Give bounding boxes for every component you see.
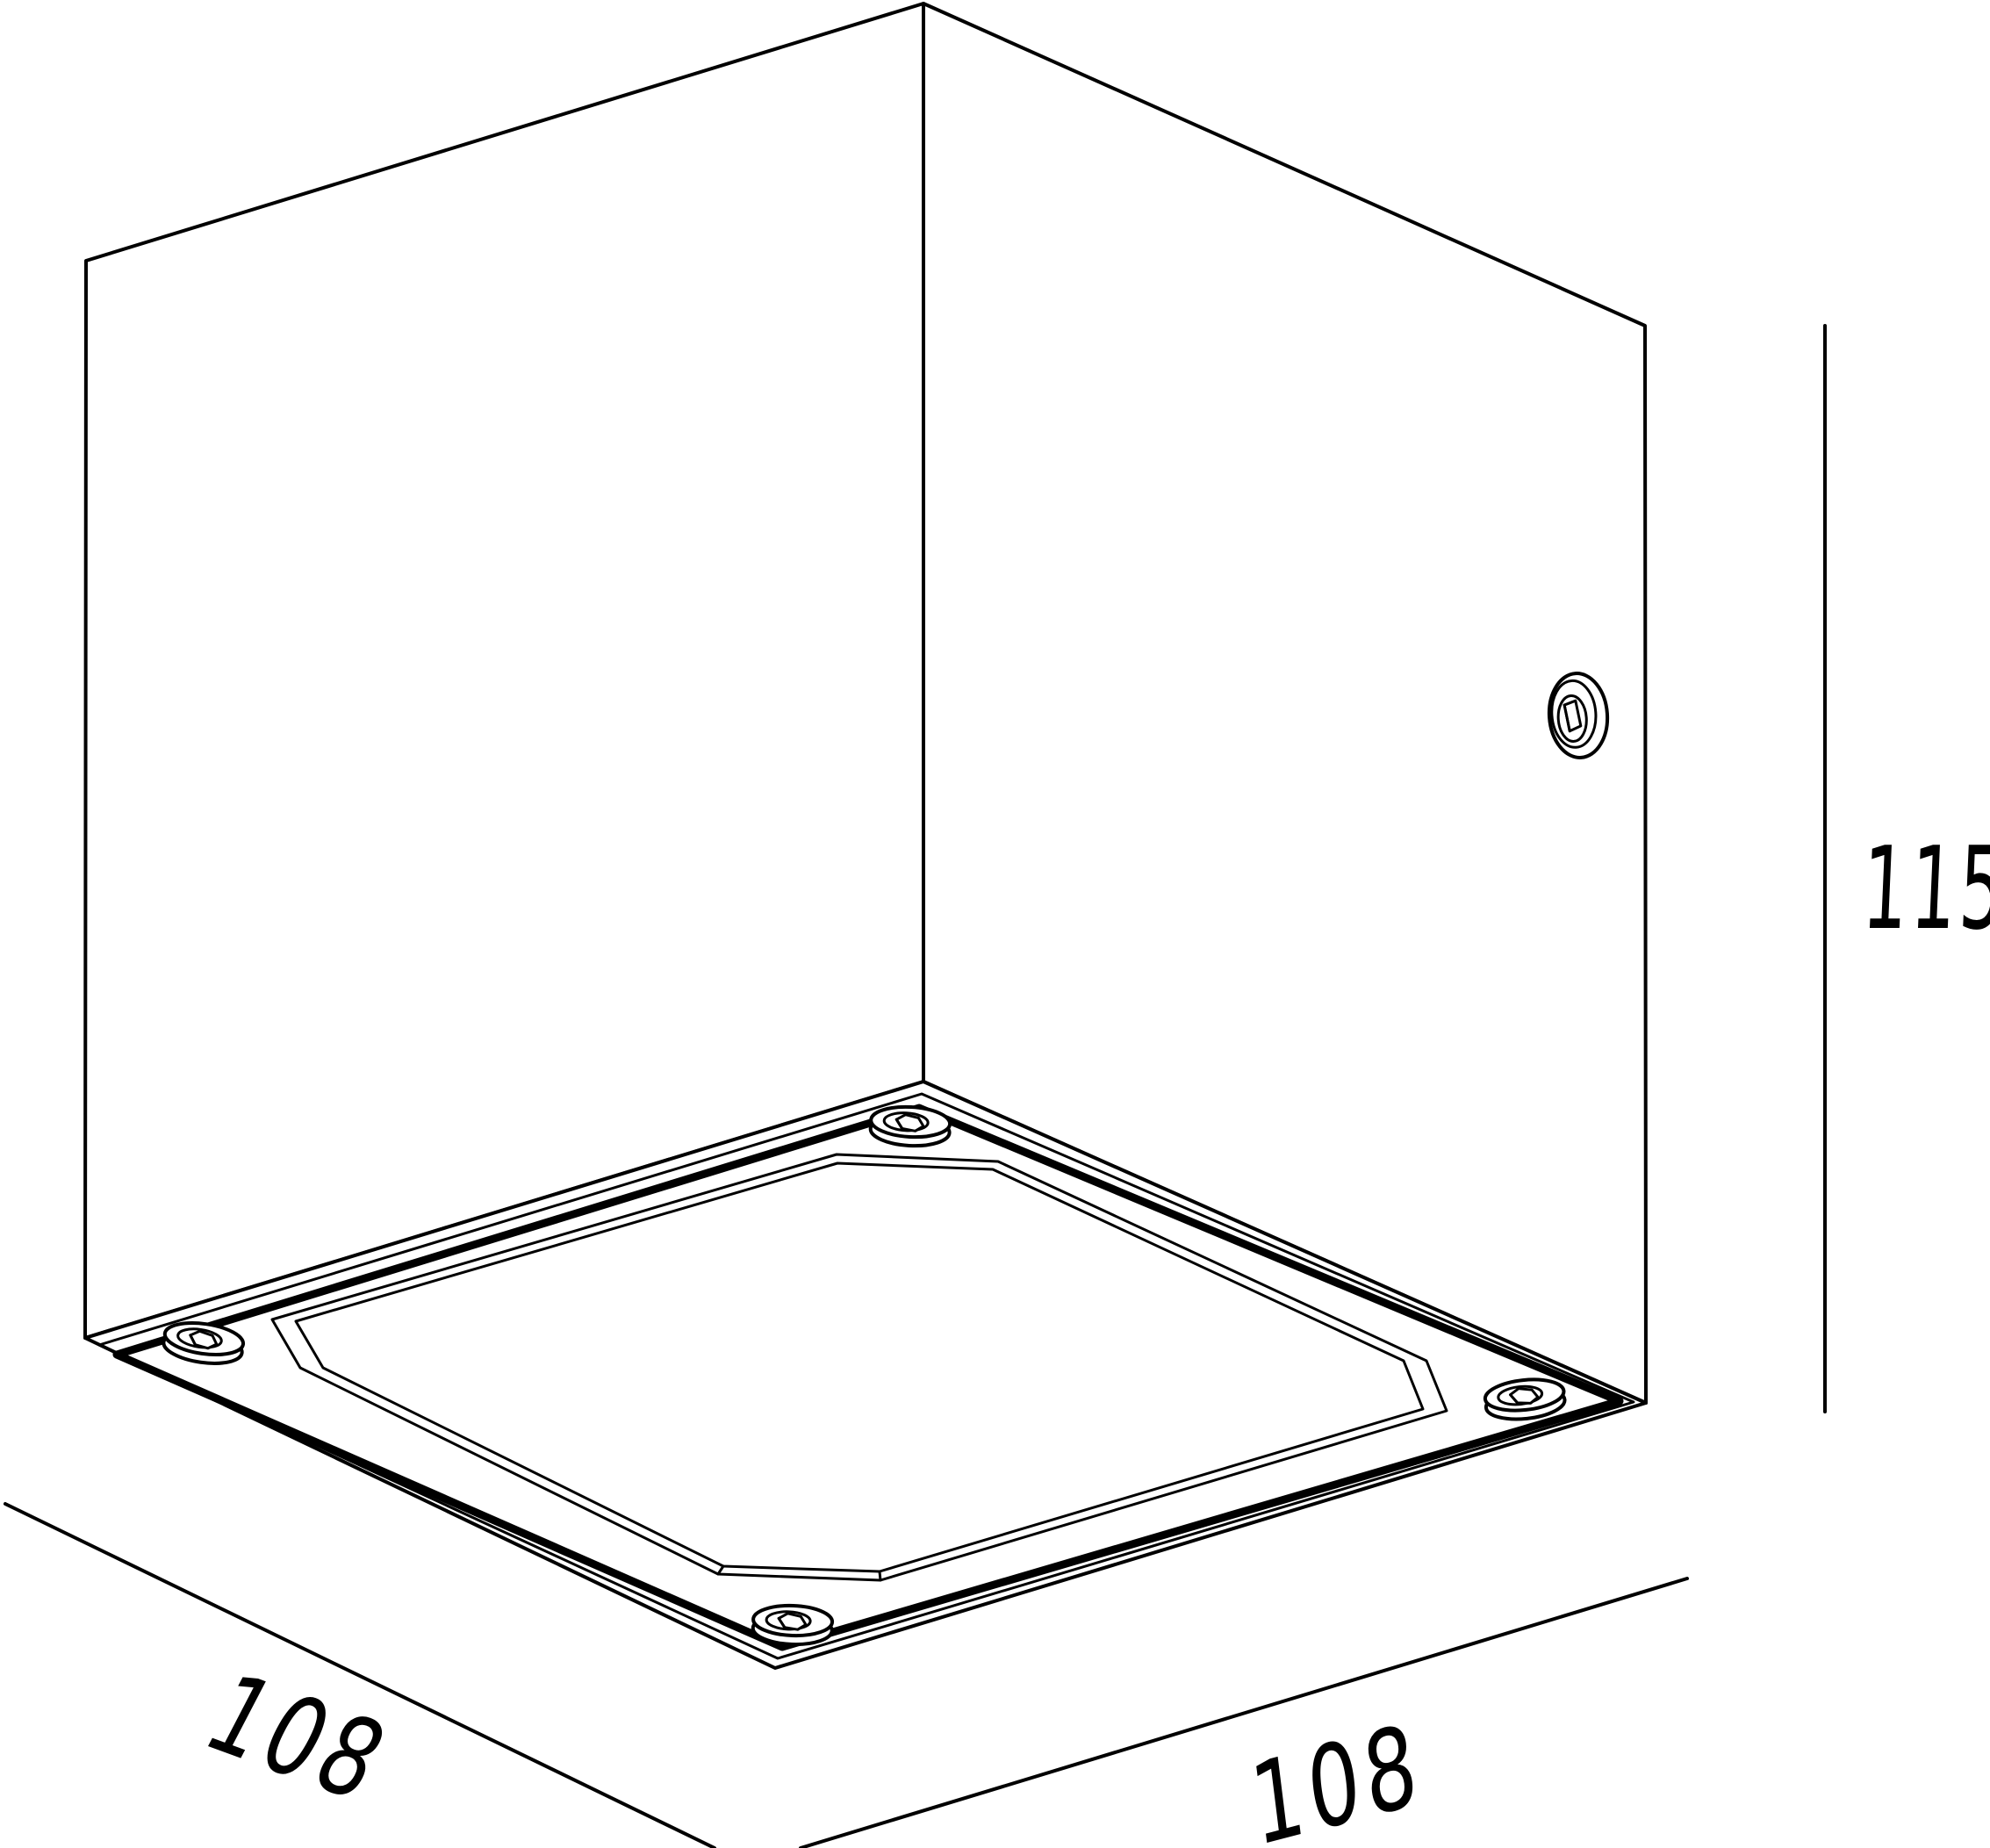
luminaire-body [85,4,1646,1668]
dimension-label-height: 115 [1860,823,1990,955]
technical-drawing-page: 108 108 115 [0,0,1990,1848]
dimension-label-width-right: 108 [1245,1700,1429,1848]
dimension-label-width-left: 108 [186,1651,410,1826]
screw-front [752,1604,832,1645]
technical-drawing-canvas: 108 108 115 [0,0,1990,1848]
screw-back [870,1105,951,1148]
